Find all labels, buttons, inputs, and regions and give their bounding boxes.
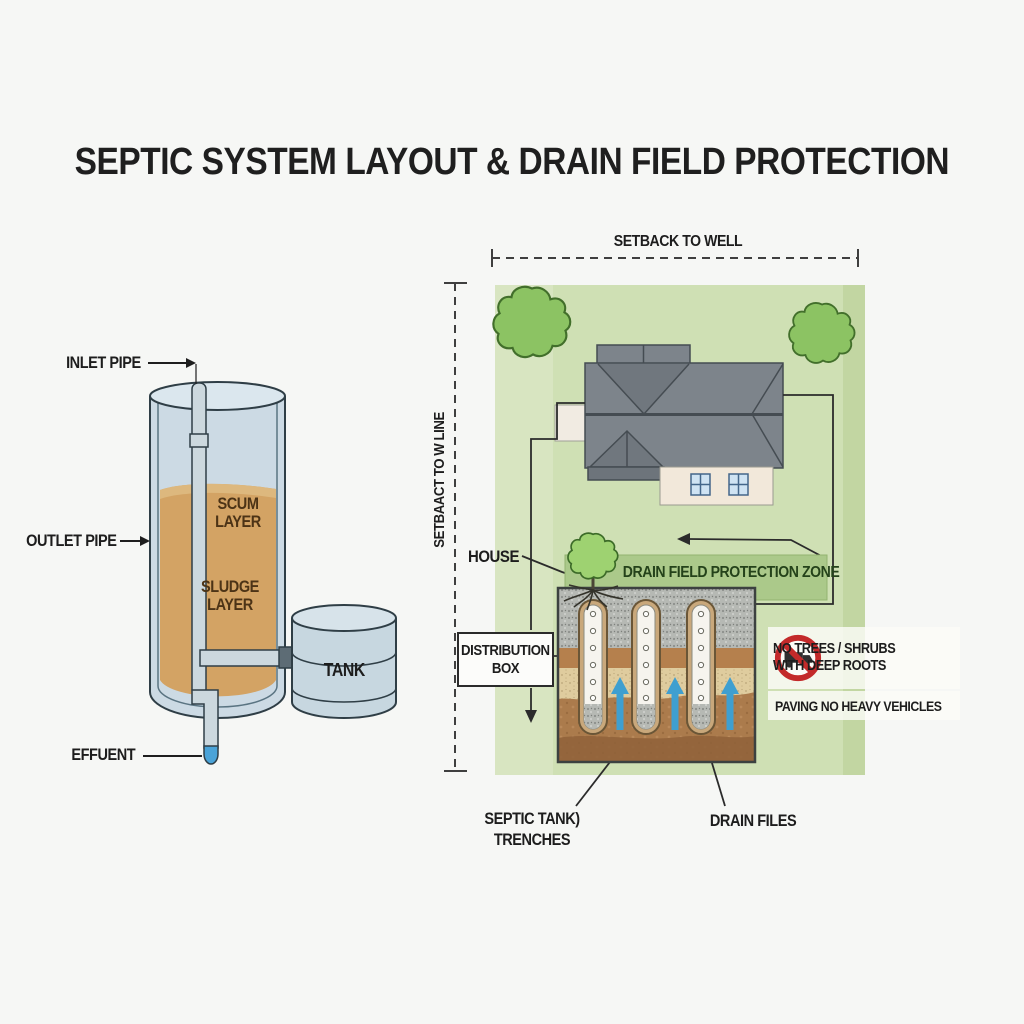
no-trees-text: NO TREES / SHRUBS WITH DEEP ROOTS [773,641,912,674]
drain-field-cross-section [558,588,755,762]
paving-sign: PAVING NO HEAVY VEHICLES [768,691,960,720]
house-label: HOUSE [468,547,528,567]
sludge-layer-label: SLUDGE LAYER [196,578,264,614]
effluent-label: EFFUENT [66,746,140,765]
septic-tank-diagram [0,340,440,790]
effluent-drop [204,746,218,764]
page-title: SEPTIC SYSTEM LAYOUT & DRAIN FIELD PROTE… [0,141,1024,184]
scum-layer-label: SCUM LAYER [204,495,272,531]
distribution-box: DISTRIBUTION BOX [457,632,554,687]
pump-tank-label: TANK [314,660,374,681]
bottom-elbow-pipe [192,690,218,764]
drain-trench [687,600,715,734]
outlet-pipe-run [200,647,294,668]
no-trees-sign: NO TREES / SHRUBS WITH DEEP ROOTS [768,627,960,689]
septic-trenches-label: SEPTIC TANK) TRENCHES [466,809,598,852]
drain-trench [579,600,607,734]
drain-trench [632,600,660,734]
center-inlet-pipe [190,383,208,695]
outlet-pipe-label: OUTLET PIPE [20,532,118,551]
protection-zone-label: DRAIN FIELD PROTECTION ZONE [608,564,832,582]
window-icon [691,474,710,495]
house-patio [660,467,773,505]
main-tank-cylinder [150,382,285,718]
setback-to-well-label: SETBACK TO WELL [495,233,861,251]
drain-tiles-label: DRAIN FILES [697,812,809,831]
window-icon [729,474,748,495]
inlet-pipe-label: INLET PIPE [50,354,146,373]
setback-to-line-label: SETBAACT TO W LINE [431,397,448,562]
